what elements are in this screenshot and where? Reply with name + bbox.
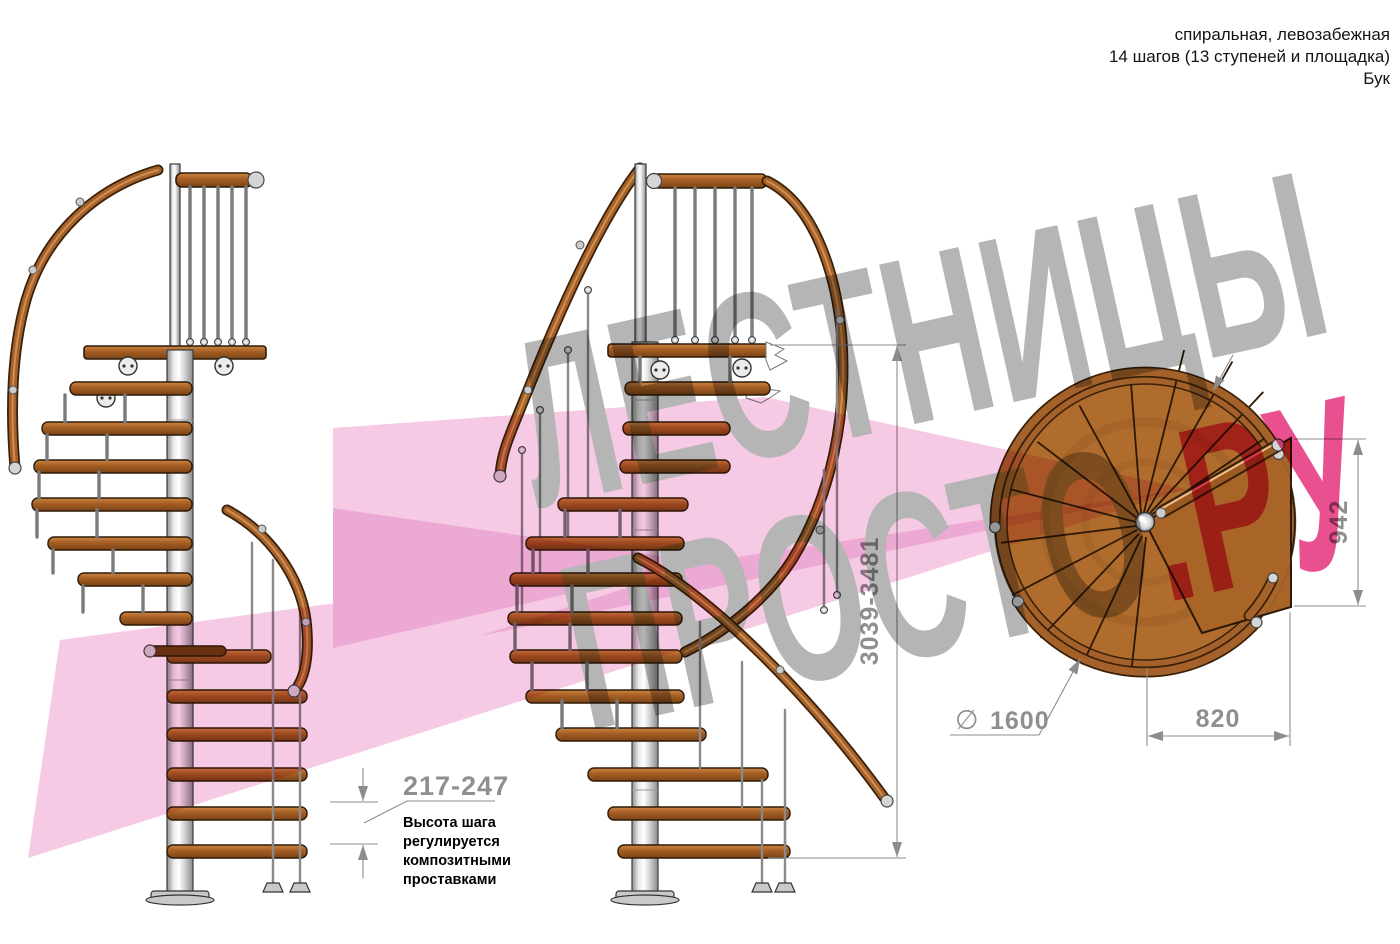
- plan-view: [955, 350, 1400, 750]
- handrail-end-cap: [494, 470, 506, 482]
- drawing-sheet: 3039-3481 217-247 Высота шага регулирует…: [0, 0, 1400, 944]
- title-line-type: спиральная, левозабежная: [1109, 24, 1390, 46]
- balusters: [187, 187, 250, 346]
- title-block: спиральная, левозабежная 14 шагов (13 ст…: [1109, 24, 1390, 90]
- handrail-lower-segment: [144, 645, 226, 657]
- handrail-end-cap: [881, 795, 893, 807]
- title-line-material: Бук: [1109, 68, 1390, 90]
- platform-railing: [176, 172, 264, 346]
- newel-post: [170, 164, 180, 354]
- connector-disks: [651, 359, 751, 379]
- center-post-cap: [1136, 513, 1155, 532]
- balusters: [672, 188, 756, 344]
- newel-post: [635, 164, 646, 344]
- rod-foot: [290, 883, 310, 892]
- handrail-inner-right: [227, 510, 310, 697]
- break-mark: [766, 342, 787, 370]
- left-elevation-view: [0, 150, 340, 915]
- handrail-outer-right: [685, 181, 844, 652]
- rod-foot: [775, 883, 795, 892]
- platform-railing: [647, 174, 768, 345]
- rod-foot: [263, 883, 283, 892]
- handrail-end-cap: [9, 462, 21, 474]
- handrail-end-cap: [288, 685, 300, 697]
- front-elevation-view: [480, 150, 910, 915]
- title-line-steps: 14 шагов (13 ступеней и площадка): [1109, 46, 1390, 68]
- rod-foot: [752, 883, 772, 892]
